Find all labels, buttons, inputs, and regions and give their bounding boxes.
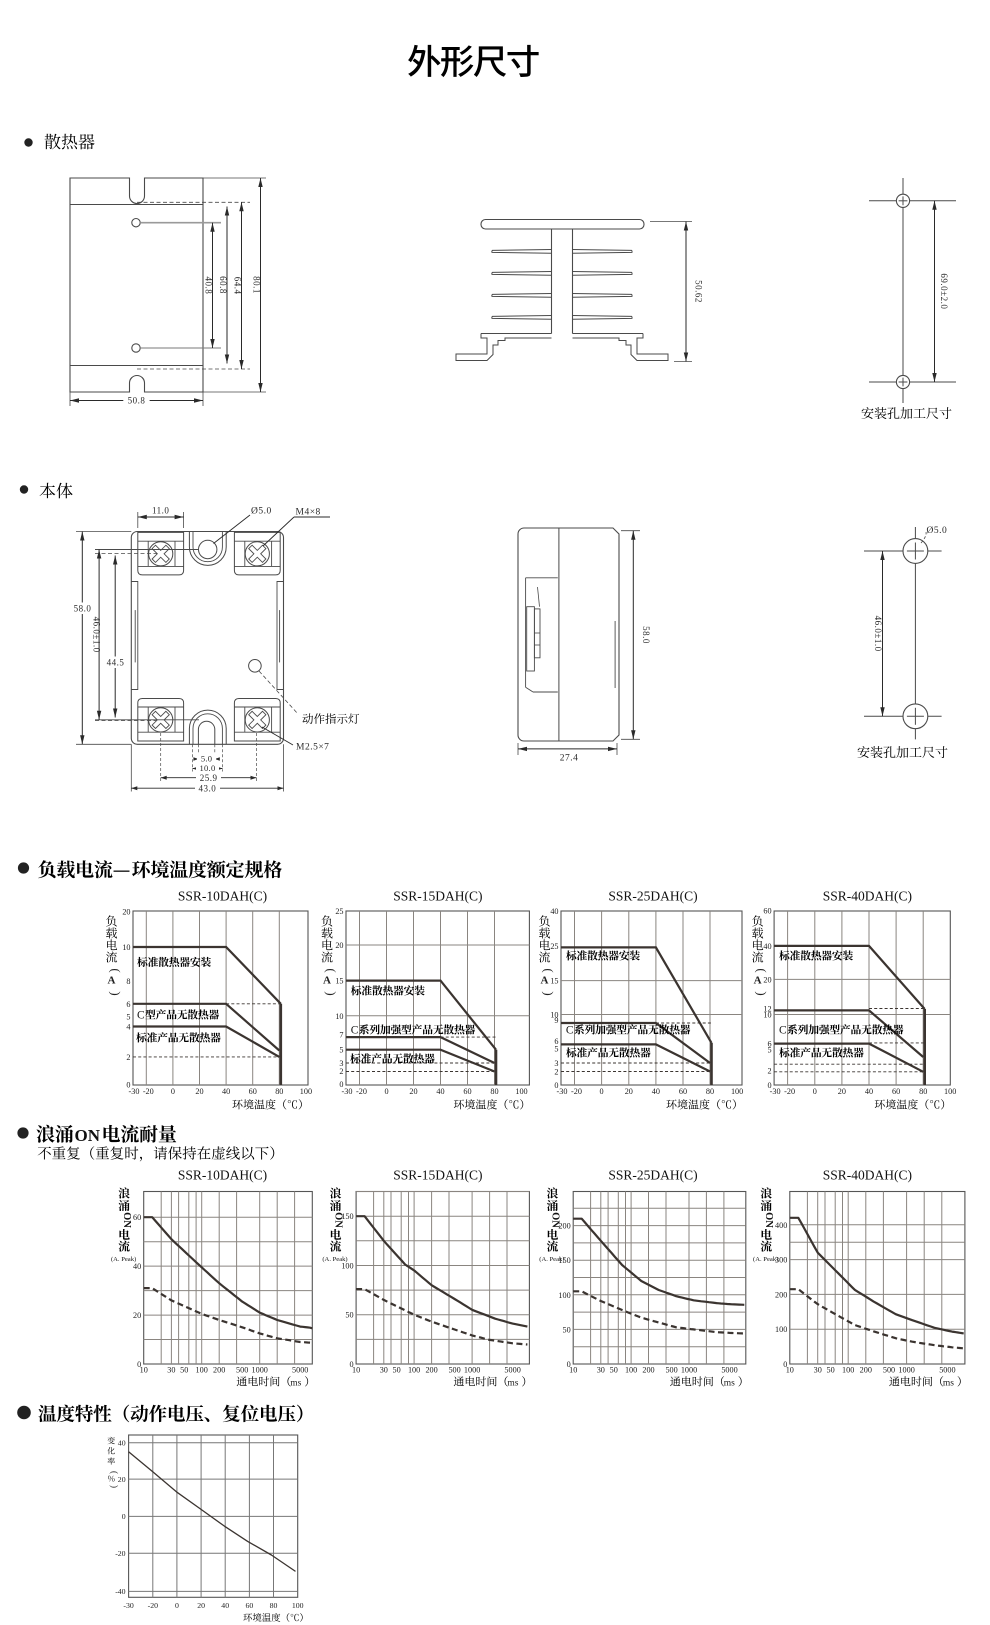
svg-text:0: 0	[600, 1087, 604, 1096]
svg-text:1000: 1000	[898, 1366, 914, 1375]
svg-text:-30: -30	[123, 1601, 133, 1610]
svg-text:10: 10	[122, 943, 130, 952]
svg-text:SSR-10DAH(C): SSR-10DAH(C)	[178, 889, 267, 904]
svg-text:SSR-15DAH(C): SSR-15DAH(C)	[393, 1168, 482, 1183]
svg-text:50.8: 50.8	[128, 396, 146, 406]
svg-text:C: C	[137, 1010, 145, 1022]
svg-text:5: 5	[768, 1046, 772, 1055]
svg-text:10: 10	[140, 1366, 148, 1375]
svg-text:20: 20	[838, 1087, 846, 1096]
svg-text:10: 10	[763, 1011, 771, 1020]
svg-text:25.9: 25.9	[200, 773, 218, 783]
svg-text:25: 25	[550, 942, 558, 951]
svg-text:5000: 5000	[939, 1366, 955, 1375]
svg-text:-30: -30	[342, 1087, 353, 1096]
svg-text:9: 9	[554, 1016, 558, 1025]
svg-text:200: 200	[213, 1366, 225, 1375]
svg-text:100: 100	[300, 1087, 312, 1096]
svg-text:7: 7	[339, 1031, 343, 1040]
svg-text:): )	[755, 991, 770, 995]
svg-text:5: 5	[554, 1045, 558, 1054]
svg-text:A: A	[754, 975, 762, 987]
svg-text:60: 60	[892, 1087, 900, 1096]
svg-text:100: 100	[558, 1291, 570, 1300]
svg-text:60: 60	[463, 1087, 471, 1096]
svg-text:40: 40	[865, 1087, 873, 1096]
svg-text:100: 100	[775, 1325, 787, 1334]
svg-text:60: 60	[249, 1087, 257, 1096]
svg-text:5: 5	[339, 1046, 343, 1055]
svg-text:40: 40	[222, 1087, 230, 1096]
svg-text:2: 2	[768, 1066, 772, 1075]
svg-text:100: 100	[196, 1366, 208, 1375]
svg-text:10: 10	[352, 1366, 360, 1375]
svg-text:-20: -20	[356, 1087, 367, 1096]
svg-text:25: 25	[335, 907, 343, 916]
svg-text:A: A	[541, 975, 549, 987]
svg-text:): )	[109, 1485, 119, 1488]
svg-text:ms: ms	[943, 1379, 954, 1389]
svg-text:-20: -20	[148, 1601, 158, 1610]
svg-text:50: 50	[393, 1366, 401, 1375]
svg-text:C: C	[779, 1025, 787, 1037]
svg-text:20: 20	[195, 1087, 203, 1096]
svg-text:Ø5.0: Ø5.0	[251, 507, 272, 517]
svg-text:40: 40	[118, 1439, 126, 1448]
svg-text:Ø5.0: Ø5.0	[927, 526, 948, 536]
svg-text:200: 200	[775, 1290, 787, 1299]
svg-text:80: 80	[490, 1087, 498, 1096]
svg-text:A: A	[323, 975, 331, 987]
svg-text:20: 20	[335, 941, 343, 950]
svg-text:64.4: 64.4	[233, 277, 243, 295]
svg-text:30: 30	[814, 1366, 822, 1375]
svg-text:A: A	[108, 975, 116, 987]
svg-text:80: 80	[919, 1087, 927, 1096]
svg-text:6: 6	[126, 1000, 130, 1009]
svg-text:40.8: 40.8	[203, 276, 213, 294]
svg-text:500: 500	[665, 1366, 677, 1375]
svg-text:M2.5×7: M2.5×7	[296, 743, 329, 753]
svg-text:46.0±1.0: 46.0±1.0	[92, 617, 102, 653]
svg-text:100: 100	[515, 1087, 527, 1096]
svg-text:8: 8	[126, 977, 130, 986]
svg-text:80: 80	[270, 1601, 278, 1610]
svg-text:40: 40	[436, 1087, 444, 1096]
svg-text:58.0: 58.0	[641, 626, 651, 644]
svg-text:50: 50	[180, 1366, 188, 1375]
svg-text:5: 5	[126, 1012, 130, 1021]
svg-text:-30: -30	[557, 1087, 568, 1096]
svg-text:ms: ms	[290, 1379, 301, 1389]
svg-text:5000: 5000	[504, 1366, 520, 1375]
svg-text:(: (	[324, 968, 339, 972]
svg-text:-20: -20	[784, 1087, 795, 1096]
svg-text:-40: -40	[115, 1587, 125, 1596]
svg-text:200: 200	[642, 1366, 654, 1375]
svg-text:-20: -20	[571, 1087, 582, 1096]
svg-text:ms: ms	[724, 1379, 735, 1389]
svg-text:2: 2	[339, 1067, 343, 1076]
svg-text:): )	[324, 991, 339, 995]
svg-text:200: 200	[425, 1366, 437, 1375]
svg-text:ON: ON	[121, 1212, 132, 1228]
svg-text:30: 30	[167, 1366, 175, 1375]
svg-text:80: 80	[706, 1087, 714, 1096]
svg-text:2: 2	[126, 1053, 130, 1062]
svg-text:C: C	[566, 1025, 574, 1037]
svg-text:20: 20	[197, 1601, 205, 1610]
svg-text:44.5: 44.5	[107, 658, 125, 668]
svg-text:(: (	[109, 968, 124, 972]
svg-text:20: 20	[409, 1087, 417, 1096]
svg-text:2: 2	[554, 1068, 558, 1077]
svg-text:(A. Peak): (A. Peak)	[111, 1256, 136, 1263]
svg-text:27.4: 27.4	[560, 754, 579, 764]
svg-text:0: 0	[175, 1601, 179, 1610]
svg-text:ON: ON	[763, 1212, 774, 1228]
svg-text:60: 60	[133, 1213, 141, 1222]
svg-text:ON: ON	[75, 1126, 101, 1145]
svg-text:-30: -30	[770, 1087, 781, 1096]
svg-text:): )	[109, 991, 124, 995]
svg-text:10: 10	[335, 1012, 343, 1021]
svg-text:SSR-40DAH(C): SSR-40DAH(C)	[823, 1168, 912, 1183]
svg-text:C: C	[351, 1025, 359, 1037]
svg-text:ms: ms	[507, 1379, 518, 1389]
svg-text:(A. Peak): (A. Peak)	[753, 1256, 778, 1263]
svg-text:1000: 1000	[252, 1366, 268, 1375]
svg-text:1000: 1000	[681, 1366, 697, 1375]
svg-text:40: 40	[550, 907, 558, 916]
svg-text:SSR-25DAH(C): SSR-25DAH(C)	[608, 1168, 697, 1183]
svg-text:0: 0	[171, 1087, 175, 1096]
svg-text:200: 200	[860, 1366, 872, 1375]
svg-text:4: 4	[126, 1023, 130, 1032]
svg-text:15: 15	[335, 977, 343, 986]
svg-text:400: 400	[775, 1221, 787, 1230]
svg-text:20: 20	[625, 1087, 633, 1096]
svg-text:20: 20	[122, 908, 130, 917]
svg-text:20: 20	[763, 975, 771, 984]
svg-text:100: 100	[292, 1601, 304, 1610]
svg-text:SSR-25DAH(C): SSR-25DAH(C)	[608, 889, 697, 904]
svg-text:40: 40	[221, 1601, 229, 1610]
svg-text:SSR-10DAH(C): SSR-10DAH(C)	[178, 1168, 267, 1183]
svg-text:0: 0	[813, 1087, 817, 1096]
svg-text:30: 30	[380, 1366, 388, 1375]
svg-text:43.0: 43.0	[199, 784, 217, 794]
svg-text:58.0: 58.0	[74, 604, 92, 614]
svg-text:60.8: 60.8	[218, 276, 228, 294]
svg-text:SSR-40DAH(C): SSR-40DAH(C)	[823, 889, 912, 904]
svg-text:100: 100	[944, 1087, 956, 1096]
svg-text:50: 50	[345, 1311, 353, 1320]
svg-text:50: 50	[827, 1366, 835, 1375]
svg-text:100: 100	[731, 1087, 743, 1096]
svg-text:ON: ON	[549, 1212, 560, 1228]
svg-text:80: 80	[275, 1087, 283, 1096]
svg-text:0: 0	[122, 1512, 126, 1521]
svg-text:46.0±1.0: 46.0±1.0	[873, 616, 883, 652]
svg-text:60: 60	[763, 906, 771, 915]
svg-text:40: 40	[763, 942, 771, 951]
svg-text:10: 10	[569, 1366, 577, 1375]
svg-text:5000: 5000	[292, 1366, 308, 1375]
svg-text:M4×8: M4×8	[296, 508, 321, 518]
svg-text:0: 0	[384, 1087, 388, 1096]
svg-text:500: 500	[883, 1366, 895, 1375]
svg-text:(A. Peak): (A. Peak)	[322, 1256, 347, 1263]
svg-text:80.1: 80.1	[252, 276, 262, 294]
svg-text:20: 20	[118, 1475, 126, 1484]
svg-text:(: (	[755, 968, 770, 972]
svg-text:60: 60	[679, 1087, 687, 1096]
svg-text:500: 500	[448, 1366, 460, 1375]
svg-text:40: 40	[133, 1262, 141, 1271]
svg-text:50: 50	[563, 1325, 571, 1334]
svg-text:30: 30	[597, 1366, 605, 1375]
svg-text:(: (	[109, 1471, 119, 1474]
svg-text:5.0: 5.0	[201, 754, 213, 764]
svg-text:69.0±2.0: 69.0±2.0	[939, 273, 949, 309]
svg-text:100: 100	[842, 1366, 854, 1375]
svg-text:500: 500	[236, 1366, 248, 1375]
svg-text:SSR-15DAH(C): SSR-15DAH(C)	[393, 889, 482, 904]
svg-text:100: 100	[625, 1366, 637, 1375]
svg-text:20: 20	[133, 1311, 141, 1320]
svg-text:10: 10	[786, 1366, 794, 1375]
svg-text:5000: 5000	[721, 1366, 737, 1375]
svg-text:100: 100	[408, 1366, 420, 1375]
svg-text:ON: ON	[333, 1212, 344, 1228]
svg-text:-30: -30	[129, 1087, 140, 1096]
svg-text:): )	[542, 991, 557, 995]
svg-text:50.62: 50.62	[694, 280, 704, 303]
svg-text:(: (	[542, 968, 557, 972]
svg-text:(A. Peak): (A. Peak)	[539, 1256, 564, 1263]
svg-text:-20: -20	[143, 1087, 154, 1096]
svg-text:10.0: 10.0	[199, 763, 215, 773]
svg-text:50: 50	[610, 1366, 618, 1375]
svg-text:40: 40	[652, 1087, 660, 1096]
svg-text:1000: 1000	[464, 1366, 480, 1375]
svg-text:15: 15	[550, 977, 558, 986]
svg-text:-20: -20	[115, 1549, 125, 1558]
svg-text:60: 60	[246, 1601, 254, 1610]
svg-text:11.0: 11.0	[152, 506, 169, 516]
